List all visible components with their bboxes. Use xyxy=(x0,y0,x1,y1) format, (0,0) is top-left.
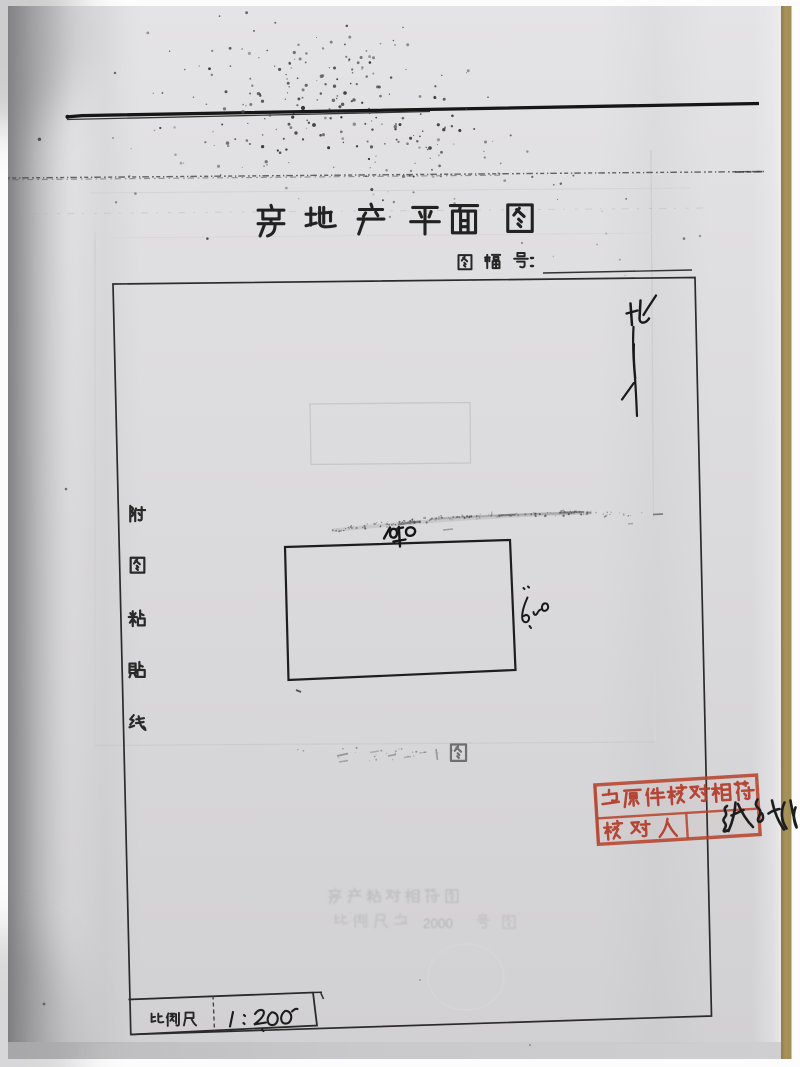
svg-text:2000: 2000 xyxy=(423,916,453,931)
